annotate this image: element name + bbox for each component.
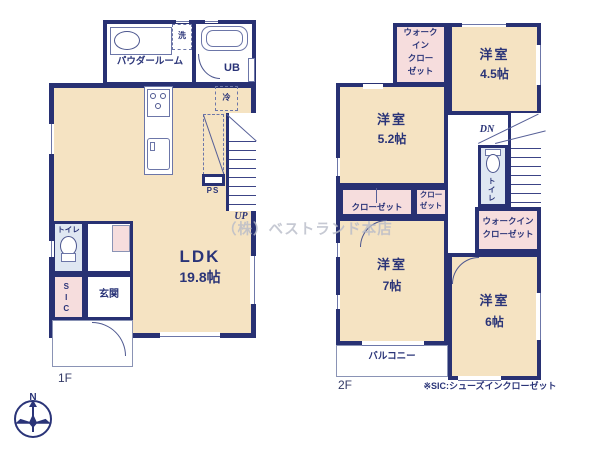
bedroom-6-name: 洋室: [448, 294, 541, 308]
window-pane-line: [176, 21, 189, 22]
window-pane-line: [540, 293, 541, 340]
bath-fixture: [248, 58, 255, 82]
closet-small-line2: ゼット: [414, 202, 448, 210]
window-pane-line: [337, 158, 338, 176]
wic-top-line4: ゼット: [394, 67, 447, 76]
wic-top-line1: ウォーク: [394, 28, 447, 37]
window: [250, 256, 257, 304]
window-pane-line: [362, 345, 424, 346]
window-pane-line: [254, 256, 255, 304]
burner-icon: [155, 103, 161, 109]
closet-divider-line: [376, 188, 377, 203]
wic-top-line2: イン: [394, 41, 447, 50]
closet-wide-label: クローゼット: [341, 203, 413, 212]
window-pane-line: [51, 124, 52, 154]
pipe-space: [202, 174, 225, 186]
fridge-label: 冷: [215, 94, 238, 103]
floor1-label: 1F: [48, 372, 82, 385]
vanity-sink-icon: [114, 31, 140, 50]
stairs-2f-treads: [511, 140, 541, 205]
toilet-1f-tank-icon: [61, 253, 76, 262]
balcony-label: バルコニー: [356, 352, 428, 362]
hall-closet: [112, 225, 130, 252]
shoe-closet-label: SIC: [61, 279, 70, 317]
window-pane-line: [205, 21, 218, 22]
window: [47, 124, 54, 154]
bedroom-4-5-name: 洋室: [448, 48, 541, 62]
bathtub-inner: [206, 30, 243, 47]
window: [362, 341, 424, 349]
window: [334, 158, 340, 176]
window: [462, 20, 506, 27]
window-pane-line: [337, 243, 338, 257]
burner-icon: [150, 93, 156, 99]
closet-small-line1: クロー: [414, 191, 448, 199]
window: [334, 243, 340, 257]
window-pane-line: [540, 45, 541, 85]
powder-room-label: パウダールーム: [104, 57, 196, 67]
ldk-name: LDK: [160, 248, 240, 267]
window: [48, 241, 54, 257]
window: [176, 18, 189, 23]
sic-note: ※SIC:シューズインクローゼット: [420, 382, 560, 392]
window-pane-line: [462, 24, 506, 25]
pipe-space-label: PS: [201, 187, 225, 196]
bedroom-4-5-size: 4.5帖: [448, 68, 541, 81]
window: [205, 18, 218, 23]
faucet-icon: [150, 142, 155, 151]
washer-label: 洗: [172, 32, 192, 41]
window-pane-line: [51, 241, 52, 257]
toilet-2f-label: トイレ: [487, 176, 495, 204]
bedroom-5-2-name: 洋室: [336, 113, 448, 127]
stairs-down-label: DN: [474, 124, 500, 135]
wic-right-line2: クローゼット: [476, 230, 540, 239]
wic-right-line1: ウォークイン: [476, 217, 540, 226]
ldk-size: 19.8帖: [160, 270, 240, 285]
window: [536, 45, 543, 85]
window: [334, 295, 340, 309]
bath-label: UB: [216, 62, 248, 74]
stairs-1f-treads: [229, 133, 256, 209]
burner-icon: [160, 93, 166, 99]
bedroom-5-2-size: 5.2帖: [336, 133, 448, 146]
window-pane-line: [337, 295, 338, 309]
toilet-1f-label: トイレ: [52, 226, 85, 234]
entrance-label: 玄関: [85, 289, 133, 300]
bedroom-7-size: 7帖: [336, 280, 448, 293]
compass-arrowhead: [29, 400, 37, 407]
bedroom-6-size: 6帖: [448, 316, 541, 329]
window-pane-line: [160, 336, 220, 337]
floor2-label: 2F: [328, 379, 362, 392]
stairs-up-label: UP: [226, 211, 256, 222]
window: [160, 332, 220, 339]
floorplan-canvas: 洗 UB パウダールーム 冷 PS UP LDK 19.8帖: [0, 0, 600, 450]
window: [536, 293, 543, 340]
door-opening: [363, 84, 383, 89]
toilet-2f-bowl-icon: [486, 154, 500, 173]
wic-top-line3: クロー: [394, 54, 447, 63]
bedroom-7-name: 洋室: [336, 258, 448, 272]
